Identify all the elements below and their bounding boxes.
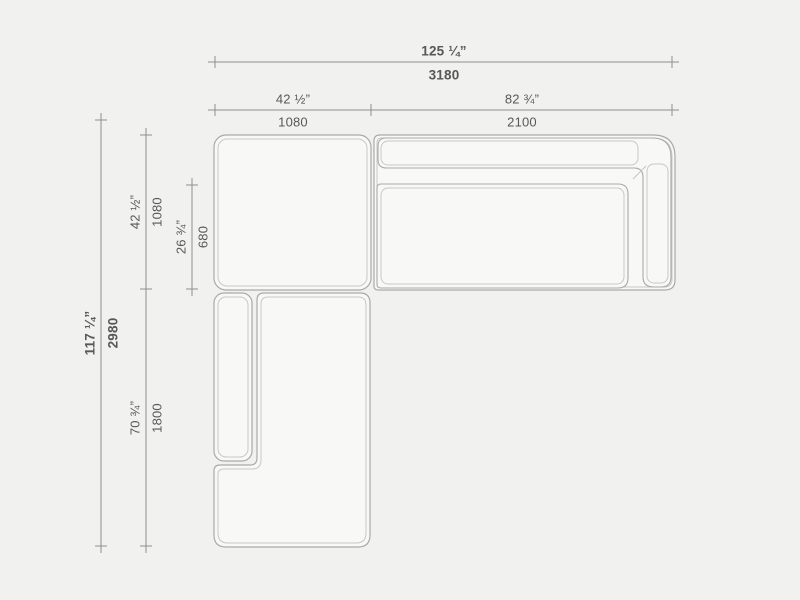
right-module-seat-cushion <box>377 184 628 288</box>
dim-width-total-inches: 125 ¼” <box>421 44 466 58</box>
dim-depth-total-mm: 2980 <box>106 318 120 349</box>
dim-chaise-length-mm: 1800 <box>151 403 164 433</box>
dim-depth-top-inches: 42 ½” <box>129 195 142 229</box>
dim-seat-depth-inches: 26 ¾” <box>175 220 188 254</box>
corner-module-outline <box>214 135 371 290</box>
dim-seat-depth-mm: 680 <box>197 226 210 248</box>
dim-depth-total-inches: 117 ¼” <box>83 311 97 356</box>
chaise-module <box>214 293 370 547</box>
dim-chaise-length-inches: 70 ¾” <box>129 401 142 435</box>
corner-module <box>214 135 371 290</box>
chaise-armrest-outline <box>214 293 252 461</box>
dim-width-right-mm: 2100 <box>507 116 537 129</box>
sofa-technical-drawing <box>0 0 800 600</box>
dimension-lines <box>95 56 679 553</box>
dim-width-total-mm: 3180 <box>429 68 460 82</box>
sofa-dimension-diagram: 125 ¼” 3180 42 ½” 1080 82 ¾” 2100 117 ¼”… <box>0 0 800 600</box>
dim-depth-top-mm: 1080 <box>151 197 164 227</box>
right-sofa-module <box>374 135 675 290</box>
dim-width-left-inches: 42 ½” <box>276 93 310 106</box>
dim-width-right-inches: 82 ¾” <box>505 93 539 106</box>
dim-width-left-mm: 1080 <box>278 116 308 129</box>
